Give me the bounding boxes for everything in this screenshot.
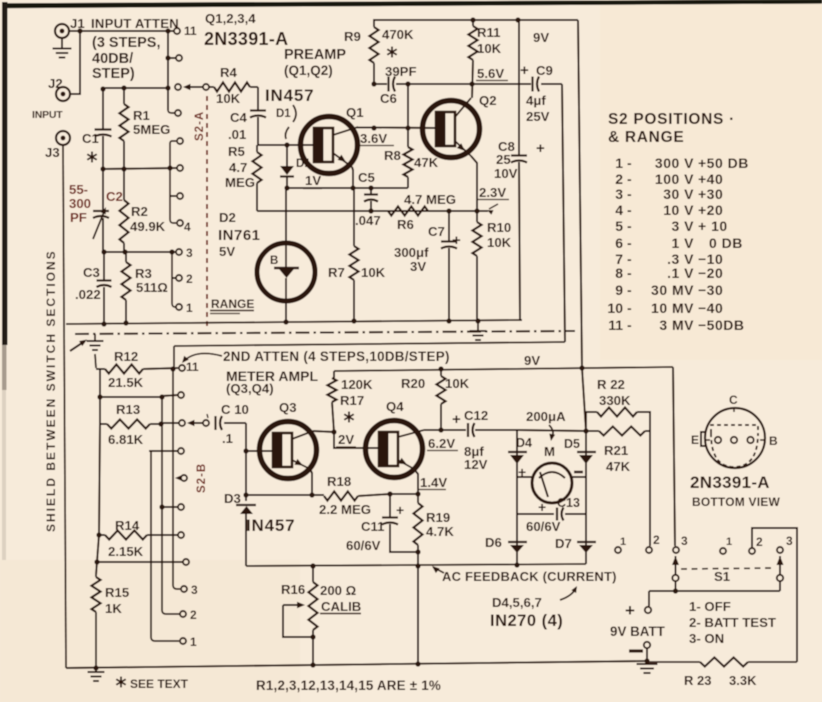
svg-text:D6: D6 bbox=[485, 535, 502, 550]
svg-text:+: + bbox=[520, 62, 529, 79]
svg-text:+: + bbox=[536, 140, 545, 157]
svg-text:D4,5,6,7: D4,5,6,7 bbox=[492, 595, 542, 610]
svg-text:Q3: Q3 bbox=[279, 400, 297, 415]
svg-text:10K: 10K bbox=[361, 265, 386, 280]
svg-text:10V: 10V bbox=[494, 166, 518, 181]
svg-text:D5: D5 bbox=[564, 437, 580, 451]
svg-text:+: + bbox=[452, 232, 461, 249]
svg-text:4.7: 4.7 bbox=[229, 160, 247, 175]
svg-text:3: 3 bbox=[615, 186, 623, 202]
svg-text:R 23: R 23 bbox=[684, 673, 711, 688]
svg-text:10K: 10K bbox=[477, 41, 502, 56]
svg-text:6.81K: 6.81K bbox=[108, 432, 144, 447]
svg-text:-: - bbox=[627, 218, 632, 234]
svg-text:-: - bbox=[627, 265, 632, 281]
svg-text:2: 2 bbox=[653, 533, 660, 547]
svg-text:C 10: C 10 bbox=[221, 402, 249, 417]
svg-text:11: 11 bbox=[186, 360, 199, 374]
svg-text:39PF: 39PF bbox=[385, 64, 417, 79]
svg-text:2: 2 bbox=[615, 171, 623, 187]
svg-text:C12: C12 bbox=[464, 408, 488, 423]
svg-text:IN761: IN761 bbox=[218, 227, 261, 244]
svg-text:2N3391-A: 2N3391-A bbox=[204, 29, 288, 49]
svg-text:1V: 1V bbox=[305, 173, 321, 188]
svg-text:25: 25 bbox=[496, 152, 511, 167]
svg-text:2ND ATTEN (4 STEPS,10DB/STEP): 2ND ATTEN (4 STEPS,10DB/STEP) bbox=[223, 349, 450, 364]
svg-text:D7: D7 bbox=[555, 536, 572, 551]
svg-text:PREAMP: PREAMP bbox=[284, 47, 346, 63]
svg-text:+40: +40 bbox=[698, 171, 723, 187]
svg-text:1: 1 bbox=[190, 635, 197, 649]
svg-text:3.6V: 3.6V bbox=[360, 131, 387, 146]
svg-text:120K: 120K bbox=[341, 377, 373, 392]
svg-text:R8: R8 bbox=[384, 148, 401, 163]
svg-text:IN457: IN457 bbox=[265, 86, 314, 105]
svg-text:4: 4 bbox=[615, 202, 623, 218]
svg-text:−40: −40 bbox=[698, 300, 723, 316]
svg-text:−20: −20 bbox=[698, 265, 723, 281]
svg-text:8: 8 bbox=[615, 265, 623, 281]
svg-text:R2: R2 bbox=[131, 204, 148, 219]
svg-text:+20: +20 bbox=[698, 202, 723, 218]
svg-text:4μf: 4μf bbox=[526, 93, 546, 108]
svg-text:1 V: 1 V bbox=[671, 235, 694, 251]
svg-text:R21: R21 bbox=[604, 443, 628, 458]
svg-text:3- ON: 3- ON bbox=[689, 631, 724, 646]
svg-text:10 V: 10 V bbox=[663, 202, 694, 218]
svg-text:1- OFF: 1- OFF bbox=[689, 599, 731, 614]
svg-text:1: 1 bbox=[620, 536, 626, 548]
svg-text:C1: C1 bbox=[82, 131, 99, 146]
svg-text:9V: 9V bbox=[533, 30, 549, 45]
svg-text:INPUT ATTEN: INPUT ATTEN bbox=[91, 16, 179, 31]
svg-text:R16: R16 bbox=[281, 582, 305, 597]
svg-text:BOTTOM VIEW: BOTTOM VIEW bbox=[692, 495, 780, 509]
svg-text:.1: .1 bbox=[222, 431, 233, 446]
svg-text:S2-A: S2-A bbox=[194, 111, 206, 141]
svg-text:300: 300 bbox=[69, 196, 91, 211]
svg-text:INPUT: INPUT bbox=[32, 109, 63, 121]
svg-text:R5: R5 bbox=[228, 144, 245, 159]
svg-text:Q2: Q2 bbox=[479, 93, 497, 108]
svg-text:40DB/: 40DB/ bbox=[92, 51, 133, 67]
svg-text:3.3K: 3.3K bbox=[729, 673, 757, 688]
svg-text:R14: R14 bbox=[115, 518, 140, 533]
svg-text:+: + bbox=[625, 601, 635, 620]
svg-text:J3: J3 bbox=[45, 145, 60, 160]
svg-text:10K: 10K bbox=[216, 91, 241, 106]
svg-text:47K: 47K bbox=[414, 155, 439, 170]
svg-text:R12: R12 bbox=[114, 349, 138, 364]
svg-text:C: C bbox=[729, 393, 738, 407]
svg-text:100 V: 100 V bbox=[655, 171, 694, 187]
svg-text:R 22: R 22 bbox=[597, 377, 625, 392]
svg-text:3: 3 bbox=[786, 534, 793, 548]
svg-text:10 MV: 10 MV bbox=[651, 300, 694, 316]
svg-text:200 Ω: 200 Ω bbox=[320, 583, 357, 598]
svg-text:S2-B: S2-B bbox=[196, 463, 208, 493]
svg-text:2: 2 bbox=[756, 535, 763, 549]
svg-text:5V: 5V bbox=[219, 244, 235, 259]
svg-text:21.5K: 21.5K bbox=[108, 375, 144, 390]
svg-text:(Q3,Q4): (Q3,Q4) bbox=[226, 381, 274, 396]
svg-text:IN457: IN457 bbox=[246, 516, 295, 535]
svg-text:-: - bbox=[627, 300, 632, 316]
svg-text:10: 10 bbox=[607, 300, 623, 316]
svg-text:6: 6 bbox=[615, 235, 623, 251]
svg-text:25V: 25V bbox=[526, 109, 550, 124]
svg-text:R10: R10 bbox=[487, 220, 511, 235]
svg-text:+: + bbox=[518, 464, 526, 480]
svg-text:C5: C5 bbox=[358, 170, 375, 185]
svg-text:B: B bbox=[769, 434, 778, 448]
svg-text:9V BATT: 9V BATT bbox=[610, 624, 666, 639]
svg-text:R1: R1 bbox=[133, 108, 150, 123]
svg-text:D4: D4 bbox=[516, 436, 532, 450]
svg-text:J1: J1 bbox=[70, 16, 85, 31]
svg-text:R4: R4 bbox=[220, 65, 238, 80]
svg-text:B: B bbox=[270, 255, 278, 267]
svg-text:Q1: Q1 bbox=[346, 105, 364, 120]
svg-text:R15: R15 bbox=[105, 585, 129, 600]
svg-text:0 DB: 0 DB bbox=[709, 235, 743, 251]
svg-text:SEE TEXT: SEE TEXT bbox=[130, 677, 189, 691]
svg-text:Q1,2,3,4: Q1,2,3,4 bbox=[205, 11, 256, 26]
svg-text:(Q1,Q2): (Q1,Q2) bbox=[284, 63, 333, 78]
svg-text:300 V: 300 V bbox=[655, 155, 694, 171]
svg-text:+: + bbox=[396, 502, 404, 518]
svg-text:470K: 470K bbox=[382, 27, 414, 42]
svg-text:1: 1 bbox=[615, 155, 623, 171]
svg-text:-: - bbox=[627, 235, 632, 251]
svg-text:.01: .01 bbox=[228, 127, 246, 142]
svg-text:30 V: 30 V bbox=[663, 186, 694, 202]
svg-text:& RANGE: & RANGE bbox=[608, 129, 684, 146]
svg-text:IN270 (4): IN270 (4) bbox=[490, 612, 563, 630]
svg-text:9V: 9V bbox=[524, 353, 540, 368]
svg-text:R1,2,3,12,13,14,15 ARE ± 1%: R1,2,3,12,13,14,15 ARE ± 1% bbox=[256, 678, 441, 693]
svg-text:D1: D1 bbox=[276, 108, 291, 120]
svg-text:511Ω: 511Ω bbox=[136, 280, 168, 295]
svg-text:2: 2 bbox=[190, 608, 197, 622]
svg-text:3: 3 bbox=[191, 583, 198, 597]
svg-text:2- BATT TEST: 2- BATT TEST bbox=[689, 615, 776, 630]
svg-text:2V: 2V bbox=[338, 432, 354, 447]
svg-text:12V: 12V bbox=[464, 457, 488, 472]
svg-text:M: M bbox=[544, 444, 555, 459]
svg-text:−50DB: −50DB bbox=[698, 317, 744, 333]
svg-text:C13: C13 bbox=[557, 496, 580, 510]
svg-text:AC FEEDBACK (CURRENT): AC FEEDBACK (CURRENT) bbox=[442, 569, 617, 584]
svg-text:CALIB: CALIB bbox=[321, 599, 361, 614]
svg-text:R18: R18 bbox=[327, 474, 351, 489]
svg-text:Q4: Q4 bbox=[386, 399, 404, 414]
svg-text:2N3391-A: 2N3391-A bbox=[690, 473, 770, 492]
svg-text:SHIELD BETWEEN SWITCH SECTIONS: SHIELD BETWEEN SWITCH SECTIONS bbox=[44, 249, 58, 532]
svg-text:60/6V: 60/6V bbox=[346, 538, 381, 553]
svg-text:R7: R7 bbox=[328, 265, 345, 280]
svg-text:R3: R3 bbox=[135, 266, 152, 281]
svg-text:S2 POSITIONS ·: S2 POSITIONS · bbox=[608, 111, 735, 128]
svg-text:STEP): STEP) bbox=[92, 66, 135, 82]
svg-text:-: - bbox=[627, 282, 632, 298]
svg-text:R9: R9 bbox=[344, 29, 361, 44]
svg-text:D3: D3 bbox=[224, 491, 241, 506]
svg-text:C9: C9 bbox=[536, 63, 553, 78]
svg-text:5.6V: 5.6V bbox=[477, 66, 504, 81]
svg-text:R11: R11 bbox=[477, 25, 500, 40]
svg-text:6.2V: 6.2V bbox=[428, 436, 455, 451]
svg-text:300μf: 300μf bbox=[394, 245, 429, 260]
svg-text:2: 2 bbox=[186, 272, 193, 286]
svg-text:.047: .047 bbox=[355, 213, 381, 228]
svg-text:J2: J2 bbox=[48, 76, 63, 91]
svg-text:+: + bbox=[452, 411, 461, 428]
svg-text:R6: R6 bbox=[397, 217, 414, 232]
svg-text:5: 5 bbox=[615, 218, 623, 234]
svg-text:3: 3 bbox=[681, 534, 688, 548]
svg-text:3: 3 bbox=[186, 246, 193, 260]
svg-text:10K: 10K bbox=[487, 235, 512, 250]
svg-text:2.2 MEG: 2.2 MEG bbox=[319, 502, 371, 517]
svg-text:C11: C11 bbox=[361, 519, 384, 534]
svg-text:RANGE: RANGE bbox=[211, 297, 254, 311]
svg-text:R17: R17 bbox=[340, 393, 364, 408]
svg-text:10K: 10K bbox=[445, 376, 470, 391]
svg-text:1K: 1K bbox=[105, 601, 122, 616]
svg-text:+30: +30 bbox=[698, 186, 723, 202]
svg-text:-: - bbox=[627, 202, 632, 218]
svg-text:+50 DB: +50 DB bbox=[698, 155, 749, 171]
svg-text:PF: PF bbox=[70, 210, 87, 225]
svg-text:9: 9 bbox=[615, 282, 623, 298]
svg-text:60/6V: 60/6V bbox=[526, 519, 561, 534]
svg-text:C3: C3 bbox=[83, 265, 100, 280]
svg-text:C6: C6 bbox=[380, 91, 397, 106]
svg-text:-: - bbox=[627, 171, 632, 187]
svg-text:E: E bbox=[691, 433, 699, 447]
svg-text:R19: R19 bbox=[426, 510, 450, 525]
svg-text:1.4V: 1.4V bbox=[420, 475, 447, 490]
svg-text:C7: C7 bbox=[428, 224, 445, 239]
svg-text:3 V: 3 V bbox=[671, 218, 694, 234]
svg-text:49.9K: 49.9K bbox=[130, 219, 166, 234]
svg-text:11: 11 bbox=[608, 317, 623, 333]
svg-text:.022: .022 bbox=[75, 287, 101, 302]
svg-text:47K: 47K bbox=[606, 459, 631, 474]
svg-text:-: - bbox=[627, 317, 632, 333]
svg-text:-: - bbox=[627, 186, 632, 202]
svg-text:330K: 330K bbox=[599, 393, 631, 408]
svg-text:−30: −30 bbox=[698, 282, 723, 298]
svg-text:30 MV: 30 MV bbox=[651, 282, 694, 298]
svg-text:MEG: MEG bbox=[225, 175, 255, 190]
svg-text:(3 STEPS,: (3 STEPS, bbox=[92, 35, 161, 51]
svg-text:11: 11 bbox=[184, 24, 197, 38]
svg-text:3V: 3V bbox=[410, 259, 426, 274]
svg-text:2.15K: 2.15K bbox=[108, 544, 144, 559]
svg-text:C4: C4 bbox=[230, 110, 248, 125]
svg-text:R13: R13 bbox=[116, 402, 140, 417]
svg-text:4.7K: 4.7K bbox=[426, 524, 454, 539]
svg-text:.1 V: .1 V bbox=[667, 265, 694, 281]
svg-text:R20: R20 bbox=[401, 376, 425, 391]
svg-text:4.7 MEG: 4.7 MEG bbox=[404, 192, 456, 207]
svg-text:1: 1 bbox=[726, 536, 732, 548]
svg-text:+: + bbox=[538, 499, 546, 515]
svg-text:2.3V: 2.3V bbox=[479, 185, 506, 200]
svg-text:3 MV: 3 MV bbox=[659, 317, 694, 333]
svg-text:-: - bbox=[627, 155, 632, 171]
svg-text:D2: D2 bbox=[219, 210, 236, 225]
svg-text:1: 1 bbox=[186, 301, 193, 315]
svg-text:S1: S1 bbox=[714, 569, 730, 584]
svg-text:5MEG: 5MEG bbox=[133, 122, 170, 137]
svg-text:+ 10: + 10 bbox=[698, 218, 728, 234]
svg-text:55-: 55- bbox=[69, 182, 88, 197]
svg-text:C2: C2 bbox=[106, 189, 123, 204]
svg-text:200μA: 200μA bbox=[526, 409, 566, 424]
svg-text:4: 4 bbox=[184, 220, 191, 234]
